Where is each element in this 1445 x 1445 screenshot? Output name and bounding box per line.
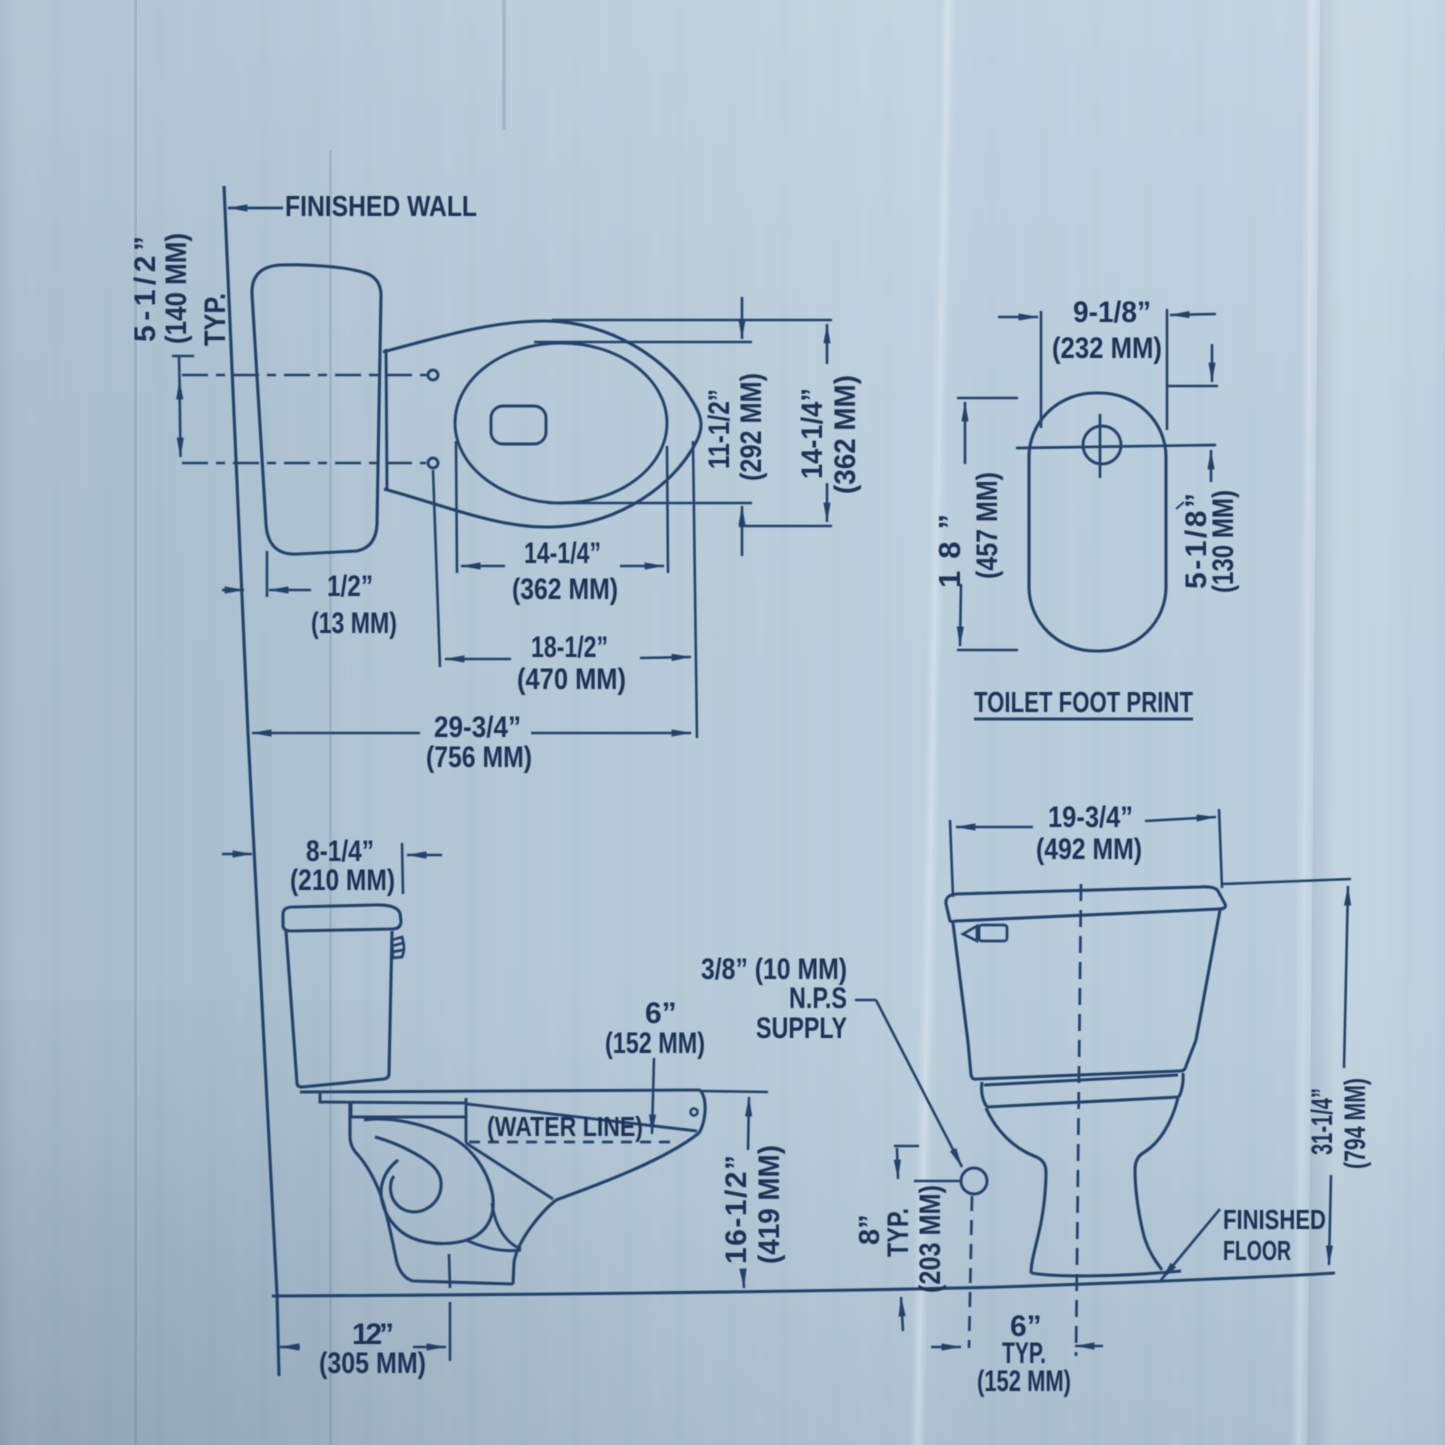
svg-text:11-1/2”: 11-1/2” xyxy=(703,389,736,469)
svg-text:(140 MM): (140 MM) xyxy=(160,233,193,344)
svg-text:FLOOR: FLOOR xyxy=(1223,1235,1291,1266)
svg-text:TOILET FOOT PRINT: TOILET FOOT PRINT xyxy=(974,687,1193,719)
svg-text:(13 MM): (13 MM) xyxy=(311,607,397,640)
svg-text:(419 MM): (419 MM) xyxy=(753,1145,786,1264)
svg-text:(362 MM): (362 MM) xyxy=(829,375,862,494)
svg-text:(292 MM): (292 MM) xyxy=(735,373,768,481)
svg-text:SUPPLY: SUPPLY xyxy=(756,1012,847,1045)
svg-text:(210 MM): (210 MM) xyxy=(290,864,395,897)
svg-text:(130 MM): (130 MM) xyxy=(1207,490,1240,593)
svg-text:TYP.: TYP. xyxy=(882,1208,915,1257)
svg-text:(457 MM): (457 MM) xyxy=(971,472,1004,579)
svg-text:6”: 6” xyxy=(645,997,677,1030)
svg-text:FINISHED WALL: FINISHED WALL xyxy=(285,191,477,223)
svg-text:(362 MM): (362 MM) xyxy=(512,573,618,606)
svg-text:FINISHED: FINISHED xyxy=(1223,1204,1326,1235)
svg-text:TYP.: TYP. xyxy=(199,293,232,346)
svg-text:14-1/4”: 14-1/4” xyxy=(796,388,829,479)
svg-text:29-3/4”: 29-3/4” xyxy=(434,711,521,744)
svg-text:(492 MM): (492 MM) xyxy=(1036,833,1142,866)
svg-text:19-3/4”: 19-3/4” xyxy=(1048,801,1133,834)
svg-text:(152 MM): (152 MM) xyxy=(977,1365,1071,1398)
svg-text:(470 MM): (470 MM) xyxy=(517,663,626,696)
svg-text:(305 MM): (305 MM) xyxy=(319,1347,426,1380)
svg-text:(232 MM): (232 MM) xyxy=(1052,332,1162,365)
svg-text:14-1/4”: 14-1/4” xyxy=(524,537,601,570)
svg-text:1/2”: 1/2” xyxy=(327,570,373,603)
svg-text:31-1/4”: 31-1/4” xyxy=(1306,1088,1339,1155)
svg-text:(203 MM): (203 MM) xyxy=(914,1185,947,1293)
svg-text:9-1/8”: 9-1/8” xyxy=(1073,296,1151,329)
svg-text:(152 MM): (152 MM) xyxy=(605,1027,705,1060)
svg-text:18-1/2”: 18-1/2” xyxy=(531,631,608,664)
svg-text:N.P.S: N.P.S xyxy=(789,982,847,1015)
svg-text:(756 MM): (756 MM) xyxy=(426,741,532,774)
svg-text:(WATER LINE): (WATER LINE) xyxy=(487,1111,643,1142)
svg-text:(794 MM): (794 MM) xyxy=(1339,1078,1372,1169)
svg-text:18”: 18” xyxy=(932,514,967,588)
